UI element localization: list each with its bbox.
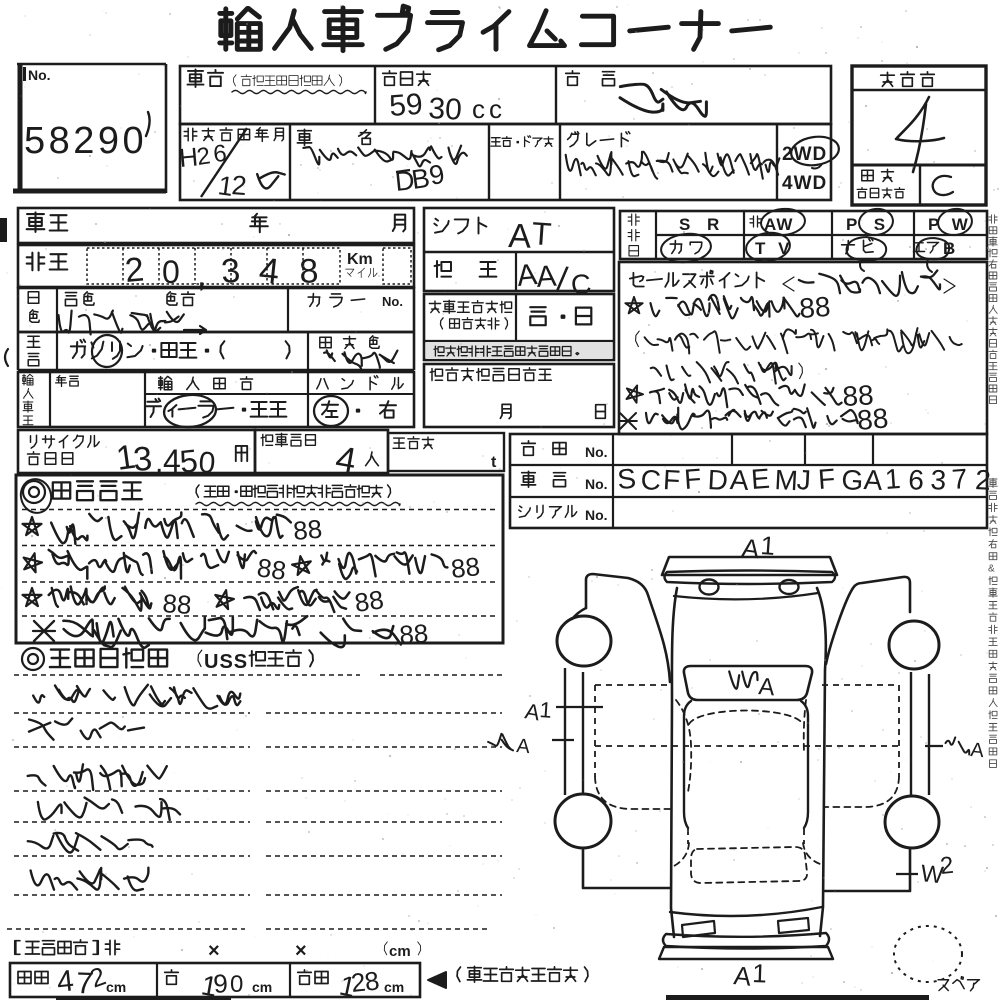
- svg-text:Km: Km: [347, 251, 373, 268]
- svg-text:&: &: [988, 563, 995, 574]
- svg-text:No.: No.: [28, 67, 51, 83]
- svg-text:A: A: [516, 735, 532, 758]
- svg-text:58290: 58290: [24, 120, 147, 162]
- svg-text:A: A: [535, 260, 557, 294]
- svg-text:4: 4: [257, 249, 281, 292]
- svg-text:7: 7: [951, 463, 969, 495]
- svg-text:A: A: [729, 464, 750, 496]
- svg-text:E: E: [750, 463, 771, 495]
- svg-text:1: 1: [539, 697, 553, 723]
- svg-text:t: t: [491, 454, 497, 471]
- svg-text:No.: No.: [585, 507, 608, 523]
- svg-text:×: ×: [295, 940, 307, 962]
- svg-text:No.: No.: [382, 294, 403, 309]
- svg-text:C: C: [569, 268, 592, 301]
- svg-text:No.: No.: [585, 444, 608, 460]
- svg-text:4: 4: [55, 964, 75, 999]
- svg-text:S: S: [616, 463, 637, 495]
- svg-text:88: 88: [255, 552, 288, 586]
- svg-text:D: D: [707, 464, 729, 496]
- svg-text:C: C: [640, 464, 662, 496]
- svg-text:0: 0: [230, 971, 243, 998]
- svg-text:88: 88: [398, 618, 429, 650]
- svg-text:No.: No.: [585, 476, 608, 492]
- svg-text:88: 88: [353, 584, 386, 618]
- svg-text:88: 88: [292, 514, 323, 546]
- svg-text:4WD: 4WD: [782, 173, 827, 194]
- svg-text:cc: cc: [472, 94, 506, 124]
- svg-text:×: ×: [208, 940, 220, 962]
- svg-text:1: 1: [752, 958, 768, 988]
- svg-text:0: 0: [162, 254, 180, 290]
- svg-text:M: M: [774, 464, 799, 496]
- svg-text:A: A: [508, 217, 532, 256]
- svg-text:J: J: [796, 464, 812, 496]
- svg-text:2: 2: [231, 170, 248, 201]
- svg-text:cm: cm: [384, 979, 404, 995]
- svg-text:A: A: [863, 464, 884, 496]
- svg-text:88: 88: [449, 551, 481, 584]
- svg-text:30: 30: [428, 92, 463, 127]
- svg-text:8: 8: [298, 252, 319, 291]
- svg-text:88: 88: [798, 291, 831, 324]
- svg-text:2: 2: [939, 852, 955, 880]
- svg-text:88: 88: [856, 402, 890, 436]
- svg-text:F: F: [662, 464, 681, 496]
- svg-text:S R: S R: [679, 215, 725, 234]
- svg-text:1: 1: [884, 463, 902, 495]
- svg-text:T V: T V: [755, 239, 793, 258]
- svg-text:59: 59: [388, 88, 424, 123]
- svg-text:cm: cm: [389, 943, 411, 960]
- svg-text:88: 88: [162, 588, 193, 620]
- svg-text:T: T: [531, 215, 553, 252]
- svg-text:9: 9: [212, 968, 229, 999]
- svg-text:6: 6: [212, 140, 228, 168]
- svg-text:P S: P S: [846, 215, 891, 234]
- svg-text:USS: USS: [204, 651, 248, 673]
- svg-text:6: 6: [908, 464, 925, 496]
- svg-text:F: F: [683, 463, 702, 495]
- svg-text:F: F: [817, 463, 836, 495]
- svg-text:2WD: 2WD: [782, 144, 827, 165]
- svg-text:3: 3: [132, 440, 154, 479]
- svg-text:cm: cm: [106, 979, 126, 995]
- svg-text:cm: cm: [252, 979, 272, 995]
- svg-text:A: A: [970, 739, 986, 762]
- svg-text:3: 3: [930, 464, 947, 496]
- svg-text:AW: AW: [764, 215, 793, 234]
- svg-text:A: A: [757, 673, 775, 701]
- svg-text:2: 2: [123, 250, 145, 290]
- svg-text:G: G: [841, 464, 864, 496]
- svg-text:3: 3: [220, 252, 242, 291]
